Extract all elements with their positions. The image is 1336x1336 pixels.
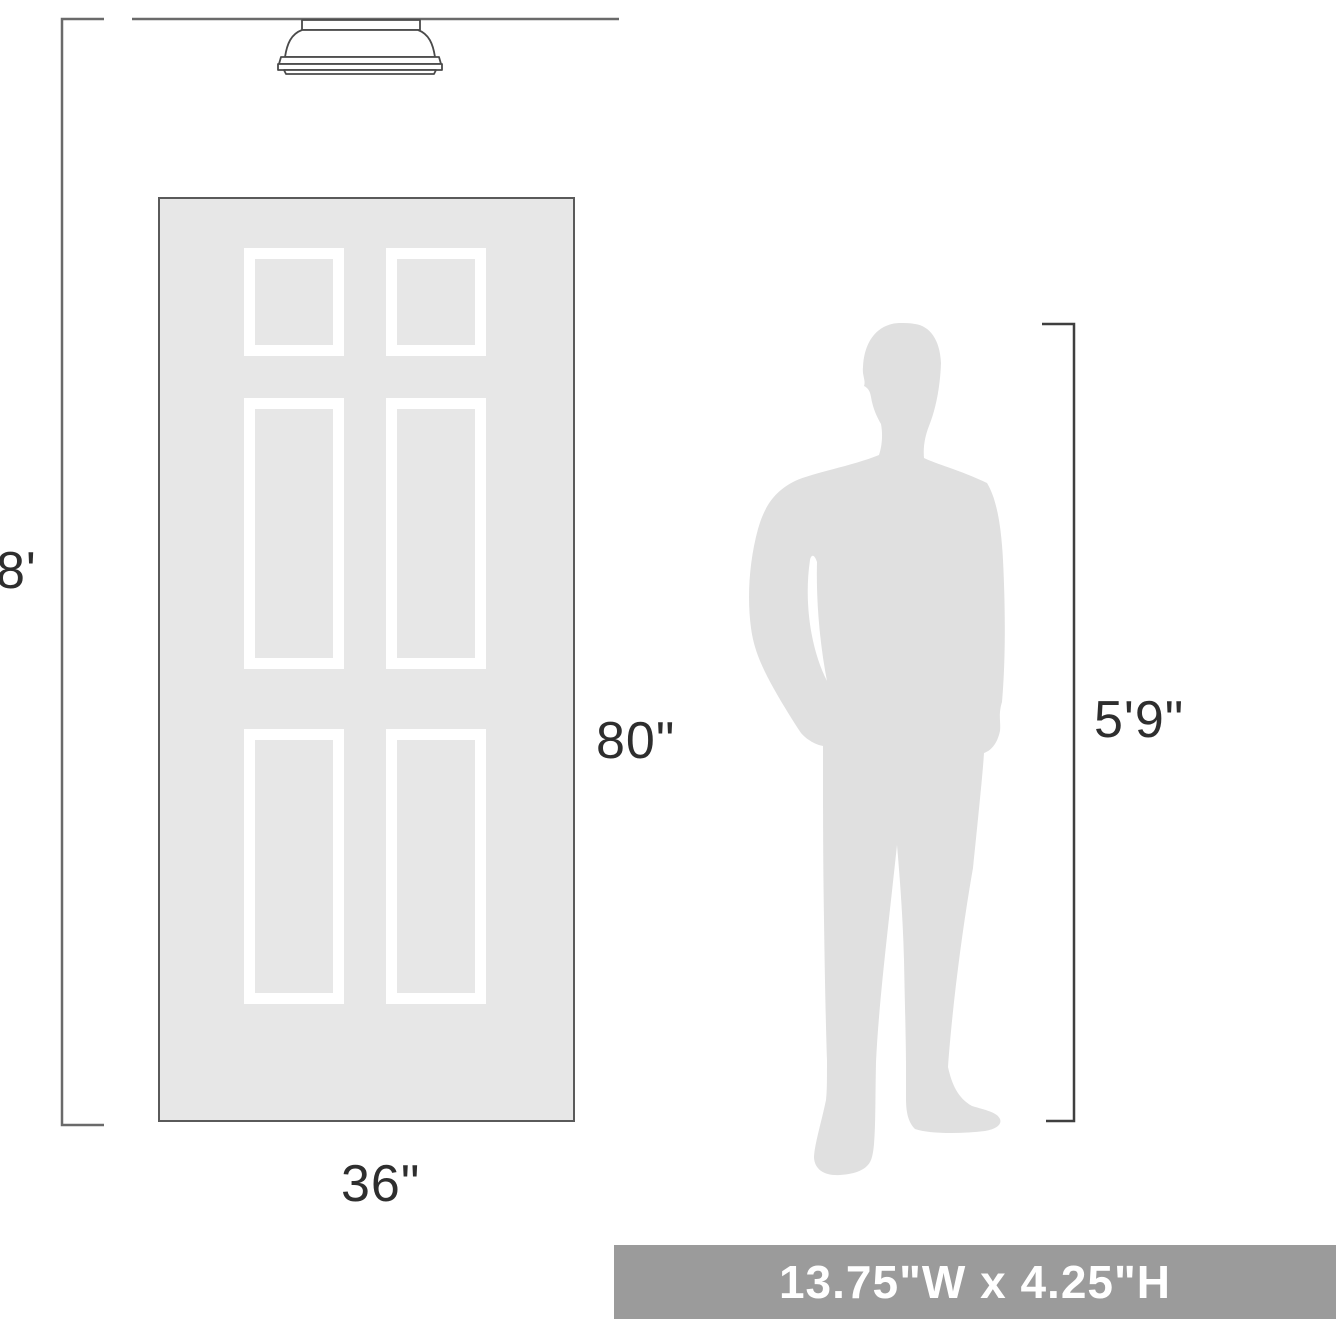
product-dimensions-banner: 13.75"W x 4.25"H — [614, 1245, 1336, 1319]
door-width-label: 36" — [341, 1158, 420, 1210]
ceiling-height-label: 8' — [0, 545, 37, 597]
door-height-label: 80" — [596, 715, 675, 767]
person-silhouette — [749, 323, 1005, 1175]
product-dimensions-label: 13.75"W x 4.25"H — [779, 1255, 1171, 1309]
person-height-bracket — [1042, 324, 1074, 1121]
door-panel — [244, 248, 344, 356]
door-panel — [244, 398, 344, 669]
door-panel — [244, 729, 344, 1004]
person-height-label: 5'9" — [1094, 694, 1184, 746]
ceiling-height-bracket — [62, 19, 104, 1125]
door-panel — [386, 248, 486, 356]
door-panel — [386, 398, 486, 669]
flushmount-light-icon — [278, 20, 442, 74]
door-panel — [386, 729, 486, 1004]
product-scale-diagram: 8' 80" 36" 5'9" 13.75"W x 4.25"H — [0, 0, 1336, 1336]
six-panel-door-graphic — [158, 197, 575, 1122]
